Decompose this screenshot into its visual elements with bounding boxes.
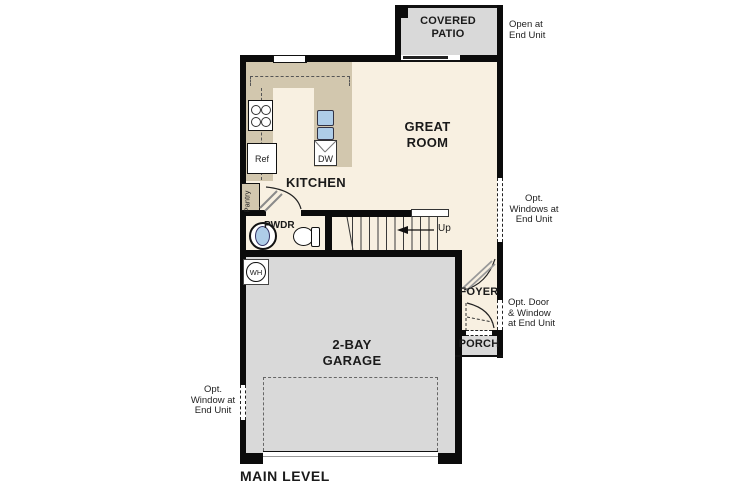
dishwasher-label: DW xyxy=(318,154,333,165)
powder-label: PWDR xyxy=(264,220,295,231)
wall-foyer-bottom-b xyxy=(492,330,503,336)
water-heater-box: WH xyxy=(243,259,269,285)
optional-window-foyer xyxy=(497,300,503,330)
wall-garage-bottom-left xyxy=(240,453,263,464)
pantry-closet: Pantry xyxy=(241,183,260,211)
refrigerator-label: Ref xyxy=(255,154,269,164)
burner-icon xyxy=(251,105,261,115)
garage-line1: 2-BAY xyxy=(297,337,407,353)
garage-window-note-line1: Opt. xyxy=(184,385,242,396)
stairs-rail xyxy=(411,209,449,217)
garage-line2: GARAGE xyxy=(297,353,407,369)
stair-treads xyxy=(352,217,438,250)
windows-note-line1: Opt. xyxy=(504,194,564,205)
porch-bottom-edge xyxy=(455,355,503,357)
optional-windows-note: Opt. Windows at End Unit xyxy=(504,194,564,226)
garage-window-note-line3: End Unit xyxy=(184,406,242,417)
upper-cabinet-dashes xyxy=(250,76,350,86)
floor-plan: Ref DW Pantry WH xyxy=(0,0,750,500)
kitchen-window xyxy=(273,55,307,63)
wall-garage-bottom-right xyxy=(438,453,460,464)
stove xyxy=(248,100,273,131)
sliding-door-track xyxy=(401,60,460,62)
wall-garage-top xyxy=(240,250,462,257)
wall-foyer-bottom-a xyxy=(458,330,466,336)
garage-label: 2-BAY GARAGE xyxy=(297,337,407,369)
burner-icon xyxy=(251,117,261,127)
patio-top-edge xyxy=(395,5,503,8)
entry-note-line1: Opt. Door xyxy=(508,298,576,309)
burner-icon xyxy=(261,105,271,115)
water-heater-circle: WH xyxy=(246,262,266,282)
garage-door xyxy=(263,451,438,457)
foyer-label: FOYER xyxy=(458,286,500,298)
kitchen-sink-basin-top xyxy=(317,110,334,126)
wall-stairs-top xyxy=(330,210,413,217)
garage-dashed-outline xyxy=(263,377,438,451)
wall-right-a xyxy=(497,58,503,178)
stairs-up-label: Up xyxy=(438,223,451,234)
sliding-door-panel xyxy=(403,56,448,59)
kitchen-sink-basin-bottom xyxy=(317,127,334,140)
great-room-line2: ROOM xyxy=(385,135,470,151)
optional-garage-window-note: Opt. Window at End Unit xyxy=(184,385,242,417)
porch-label: PORCH xyxy=(458,338,500,350)
wall-left-a xyxy=(240,55,246,385)
entry-note-line3: at End Unit xyxy=(508,319,576,330)
windows-note-line3: End Unit xyxy=(504,215,564,226)
patio-open-note: Open at End Unit xyxy=(509,20,571,41)
dishwasher: DW xyxy=(314,140,337,166)
covered-patio-line1: COVERED xyxy=(398,15,498,28)
covered-patio-label: COVERED PATIO xyxy=(398,15,498,41)
great-room-line1: GREAT xyxy=(385,119,470,135)
patio-note-line1: Open at xyxy=(509,20,571,31)
great-room-label: GREAT ROOM xyxy=(385,119,470,150)
optional-windows-right xyxy=(497,178,503,242)
refrigerator: Ref xyxy=(247,143,277,174)
optional-entry-note: Opt. Door & Window at End Unit xyxy=(508,298,576,330)
covered-patio-line2: PATIO xyxy=(398,28,498,41)
wall-garage-right xyxy=(455,250,462,464)
pantry-label: Pantry xyxy=(242,191,251,213)
kitchen-label: KITCHEN xyxy=(272,175,360,191)
level-title: MAIN LEVEL xyxy=(240,468,330,484)
patio-note-line2: End Unit xyxy=(509,31,571,42)
wall-top-b xyxy=(305,55,401,62)
water-heater-label: WH xyxy=(250,268,263,277)
toilet-tank xyxy=(311,227,320,247)
entry-door-threshold xyxy=(466,330,492,336)
burner-icon xyxy=(261,117,271,127)
